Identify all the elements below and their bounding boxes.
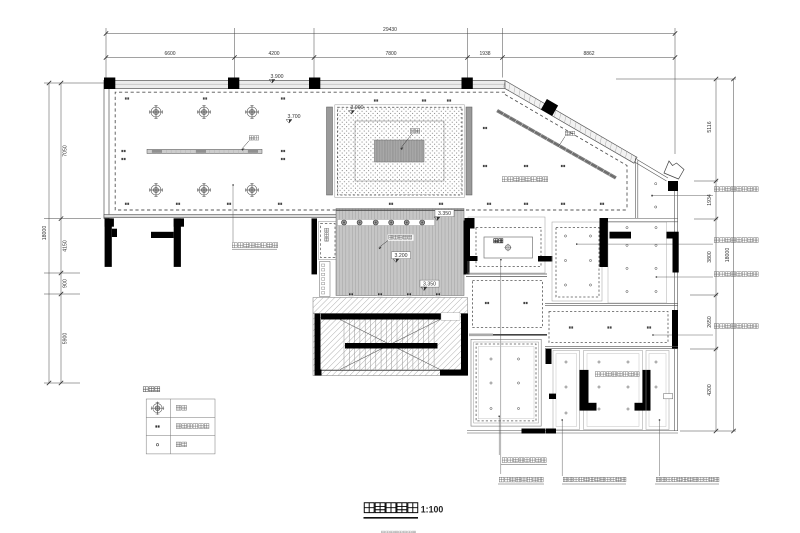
svg-text:1:100: 1:100 [421,505,444,515]
svg-text:3.350: 3.350 [438,211,451,217]
svg-text:18000: 18000 [725,248,731,263]
svg-text:4150: 4150 [63,240,69,252]
svg-text:7050: 7050 [63,145,69,157]
svg-text:5900: 5900 [63,333,69,345]
svg-text:4200: 4200 [707,384,713,396]
svg-text:1938: 1938 [479,51,490,57]
svg-text:5116: 5116 [707,121,713,132]
svg-text:3.700: 3.700 [288,114,301,120]
svg-text:900: 900 [63,279,69,288]
svg-text:3.350: 3.350 [423,281,436,287]
svg-text:2650: 2650 [707,316,713,328]
svg-text:4200: 4200 [268,51,279,57]
svg-text:1934: 1934 [707,194,713,206]
svg-text:3800: 3800 [707,251,713,263]
svg-text:29430: 29430 [383,27,397,33]
svg-text:8862: 8862 [583,51,594,57]
svg-text:6600: 6600 [164,51,175,57]
svg-text:3.200: 3.200 [395,253,408,259]
svg-text:3.900: 3.900 [351,105,364,111]
svg-text:7800: 7800 [385,51,396,57]
svg-text:3.900: 3.900 [271,74,284,80]
svg-text:18000: 18000 [42,226,48,241]
